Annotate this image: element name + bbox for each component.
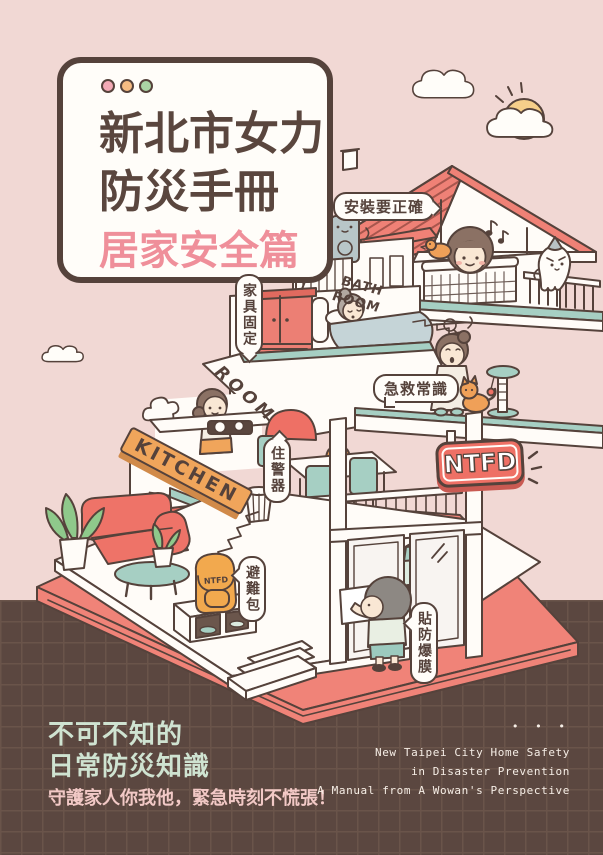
label-text: 避難包 <box>242 565 262 613</box>
ntfd-sign-text: NTFD <box>441 444 519 482</box>
label-text: 安裝要正確 <box>344 196 424 217</box>
poster: NTFD <box>0 0 603 855</box>
window-dots <box>101 79 153 93</box>
poster-title-line2: 防災手冊 <box>99 155 279 220</box>
label-text: 家具固定 <box>239 283 259 347</box>
footer-english-line1: New Taipei City Home Safety <box>317 743 570 762</box>
chimney <box>341 149 359 170</box>
window-dot <box>101 79 115 93</box>
cloud-icon <box>413 70 474 97</box>
window-dot <box>139 79 153 93</box>
label-go-bag: 避難包 <box>238 556 266 622</box>
label-furniture-fix: 家具固定 <box>235 274 263 356</box>
label-text: 貼防爆膜 <box>414 611 434 675</box>
cloud-icon <box>42 346 83 362</box>
go-bag-backpack: NTFD <box>196 554 236 613</box>
title-card: 新北市女力 防災手冊 居家安全篇 <box>57 57 333 283</box>
footer-tagline: 守護家人你我他，緊急時刻不慌張！ <box>48 784 336 810</box>
ntfd-sign: NTFD <box>435 438 525 489</box>
label-text: 急救常識 <box>384 378 448 399</box>
label-blast-film: 貼防爆膜 <box>410 602 438 684</box>
label-home-alarm: 住警器 <box>263 437 291 503</box>
poster-subtitle: 居家安全篇 <box>99 218 299 276</box>
label-first-aid: 急救常識 <box>373 374 459 403</box>
footer-english-line3: A Manual from A Wowan's Perspective <box>317 781 570 800</box>
backpack-tag-text: NTFD <box>204 575 229 586</box>
cat-tree <box>487 366 519 418</box>
label-install-correctly: 安裝要正確 <box>333 192 435 221</box>
label-text: 住警器 <box>267 446 287 494</box>
ellipsis-decoration: • • • <box>317 720 570 733</box>
label-tail <box>384 397 395 408</box>
footer-english-line2: in Disaster Prevention <box>317 762 570 781</box>
footer-english-block: • • • New Taipei City Home Safety in Dis… <box>317 720 570 800</box>
footer-headline-line2: 日常防災知識 <box>48 746 210 783</box>
motion-ticks <box>529 452 541 483</box>
poster-title-line1: 新北市女力 <box>99 97 324 162</box>
window-dot <box>120 79 134 93</box>
